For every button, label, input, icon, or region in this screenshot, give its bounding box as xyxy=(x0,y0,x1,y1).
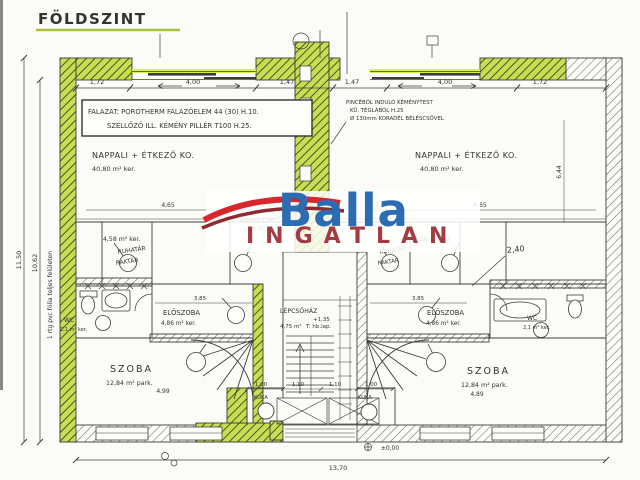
membrane-note: 1 rtg pvc fólia teljes felületen xyxy=(47,251,54,339)
room-area-storage-left: 4,58 m² ker. xyxy=(103,236,140,243)
dim-total-width: 13,70 xyxy=(329,464,348,472)
spec-note-line2: SZELLŐZŐ ILL. KÉMÉNY PILLÉR T100 H.25. xyxy=(107,121,252,130)
dim-porch-1: 1,00 xyxy=(255,382,268,388)
room-label-hall-left: ELŐSZOBA xyxy=(163,308,200,317)
room-label-bin-left: KUKA xyxy=(254,395,268,401)
room-area-bedroom-right: 12,84 m² park. xyxy=(461,382,508,389)
room-area-wc-right: 2,1 m² ker. xyxy=(523,325,550,331)
stairs-level: +1,35 xyxy=(313,317,330,323)
dim-closet-right: 2,40 xyxy=(506,244,525,255)
dim-top-5: 4,00 xyxy=(438,78,452,86)
room-label-bedroom-left: SZOBA xyxy=(110,364,153,375)
toilet-left xyxy=(82,296,95,314)
room-label-stairs: LÉPCSŐHÁZ xyxy=(280,306,317,315)
room-label-hall-right: ELŐSZOBA xyxy=(427,308,464,317)
scan-edge xyxy=(0,0,3,390)
dim-hall-left: 3,85 xyxy=(194,296,207,302)
bathroom-left xyxy=(80,290,130,331)
dim-left-inner: 10,62 xyxy=(31,254,39,273)
chimney-note-line3: Ø 130mm KORADÉL BÉLÉSCSŐVEL xyxy=(350,114,444,122)
dimension-texts: 1,72 4,00 1,47 1,47 4,00 1,72 11,50 10,6… xyxy=(15,78,563,472)
title-block: FÖLDSZINT xyxy=(36,9,180,30)
chimney-note-line2: KÜ. TÉGLÁBÓL H.25 xyxy=(350,106,404,114)
dim-porch-2: 1,10 xyxy=(292,382,305,388)
dim-right-vertical: 6,44 xyxy=(556,165,563,179)
room-area-hall-left: 4,86 m² ker. xyxy=(161,320,196,327)
watermark-word: INGATLAN xyxy=(246,224,458,249)
dim-living-left-1: 4,65 xyxy=(161,202,175,209)
room-label-bedroom-right: SZOBA xyxy=(467,366,510,377)
room-label-living-left: NAPPALI + ÉTKEZŐ KO. xyxy=(92,149,195,160)
room-area-living-left: 40,80 m² ker. xyxy=(92,165,135,173)
room-label-bin-right: KUKA xyxy=(358,395,372,401)
stair-fan-right xyxy=(367,340,429,402)
stairs-area: 4,75 m² xyxy=(280,323,302,330)
room-label-wc-right: WC xyxy=(527,315,537,322)
basin-left xyxy=(96,316,111,331)
floor-plan-page: FÖLDSZINT xyxy=(0,0,640,480)
dim-porch-4: 1,00 xyxy=(365,382,378,388)
room-label-living-right: NAPPALI + ÉTKEZŐ KO. xyxy=(415,149,518,160)
dim-top-6: 1,72 xyxy=(533,78,547,86)
dim-bedroom-left: 4,99 xyxy=(156,388,170,395)
page-title: FÖLDSZINT xyxy=(38,9,147,28)
watermark: Balla INGATLAN xyxy=(206,191,480,252)
toilet-right xyxy=(569,300,582,318)
dim-top-3: 1,47 xyxy=(280,78,294,86)
room-label-storage-left-1: RUHATÁR xyxy=(117,245,146,256)
spec-note-box: FALAZAT: POROTHERM FALAZÓELEM 44 (30) H.… xyxy=(82,100,312,136)
chimney-note-line1: PINCÉBŐL INDULÓ KÉMÉNYTEST xyxy=(346,98,434,106)
room-label-wc-left: WC xyxy=(64,317,74,324)
room-area-wc-left: 2,1 m² ker. xyxy=(60,327,87,333)
spec-note-line1: FALAZAT: POROTHERM FALAZÓELEM 44 (30) H.… xyxy=(88,107,259,116)
dim-top-2: 4,00 xyxy=(186,78,200,86)
stairs-note: T: hb.lap. xyxy=(305,324,331,330)
dim-top-4: 1,47 xyxy=(345,78,359,86)
bathroom-right xyxy=(494,295,583,338)
dim-left-outer: 11,50 xyxy=(15,251,23,270)
dim-top-1: 1,72 xyxy=(90,78,104,86)
stair-dim-ribbon xyxy=(338,296,352,420)
dim-porch-3: 1,10 xyxy=(329,382,342,388)
room-area-bedroom-left: 12,84 m² park. xyxy=(106,380,153,387)
room-area-hall-right: 4,86 m² ker. xyxy=(426,320,461,327)
dim-hall-right: 3,85 xyxy=(412,296,425,302)
level-zero: ±0,00 xyxy=(381,445,400,452)
dim-bedroom-right: 4,89 xyxy=(470,391,484,398)
room-area-living-right: 40,80 m² ker. xyxy=(420,165,463,173)
